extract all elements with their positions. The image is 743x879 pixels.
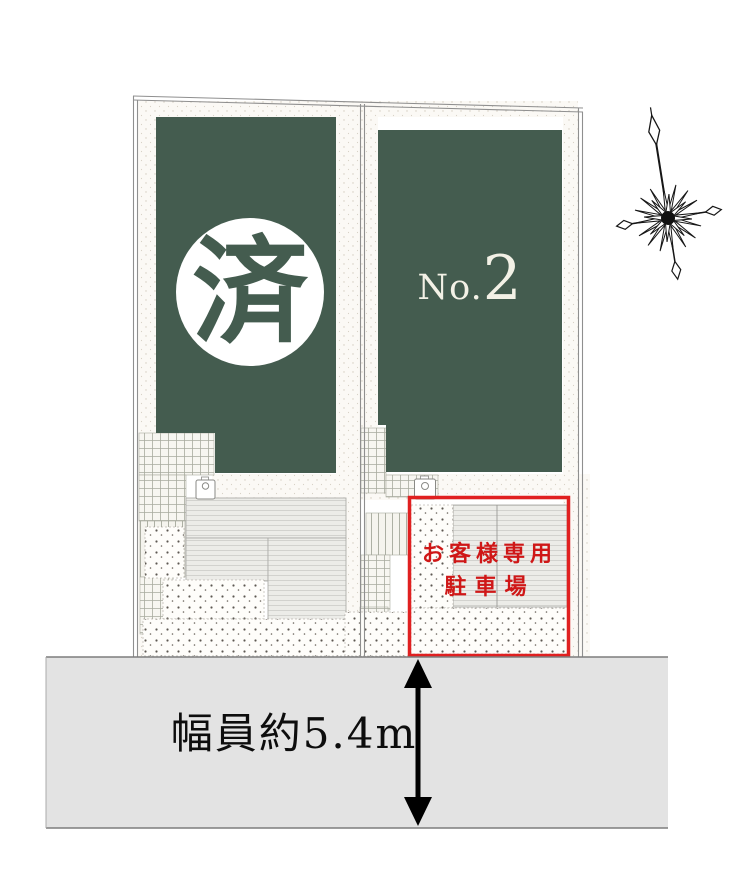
site-plan: 済 No.2 お客様専用 駐車場 幅員約5.4m	[0, 0, 743, 879]
lot-number-value: 2	[483, 248, 523, 309]
road-width-label: 幅員約5.4m	[148, 709, 440, 759]
sold-badge: 済	[176, 218, 324, 366]
water-meter-icon	[415, 476, 436, 499]
lot-number-prefix: No.	[417, 271, 482, 306]
lot-number-label: No.2	[398, 248, 542, 314]
water-meter-icon	[196, 477, 215, 499]
compass-north-icon	[599, 99, 731, 287]
customer-parking-label: お客様専用 駐車場	[411, 538, 568, 604]
customer-parking-line2: 駐車場	[411, 571, 568, 604]
customer-parking-line1: お客様専用	[411, 538, 568, 571]
